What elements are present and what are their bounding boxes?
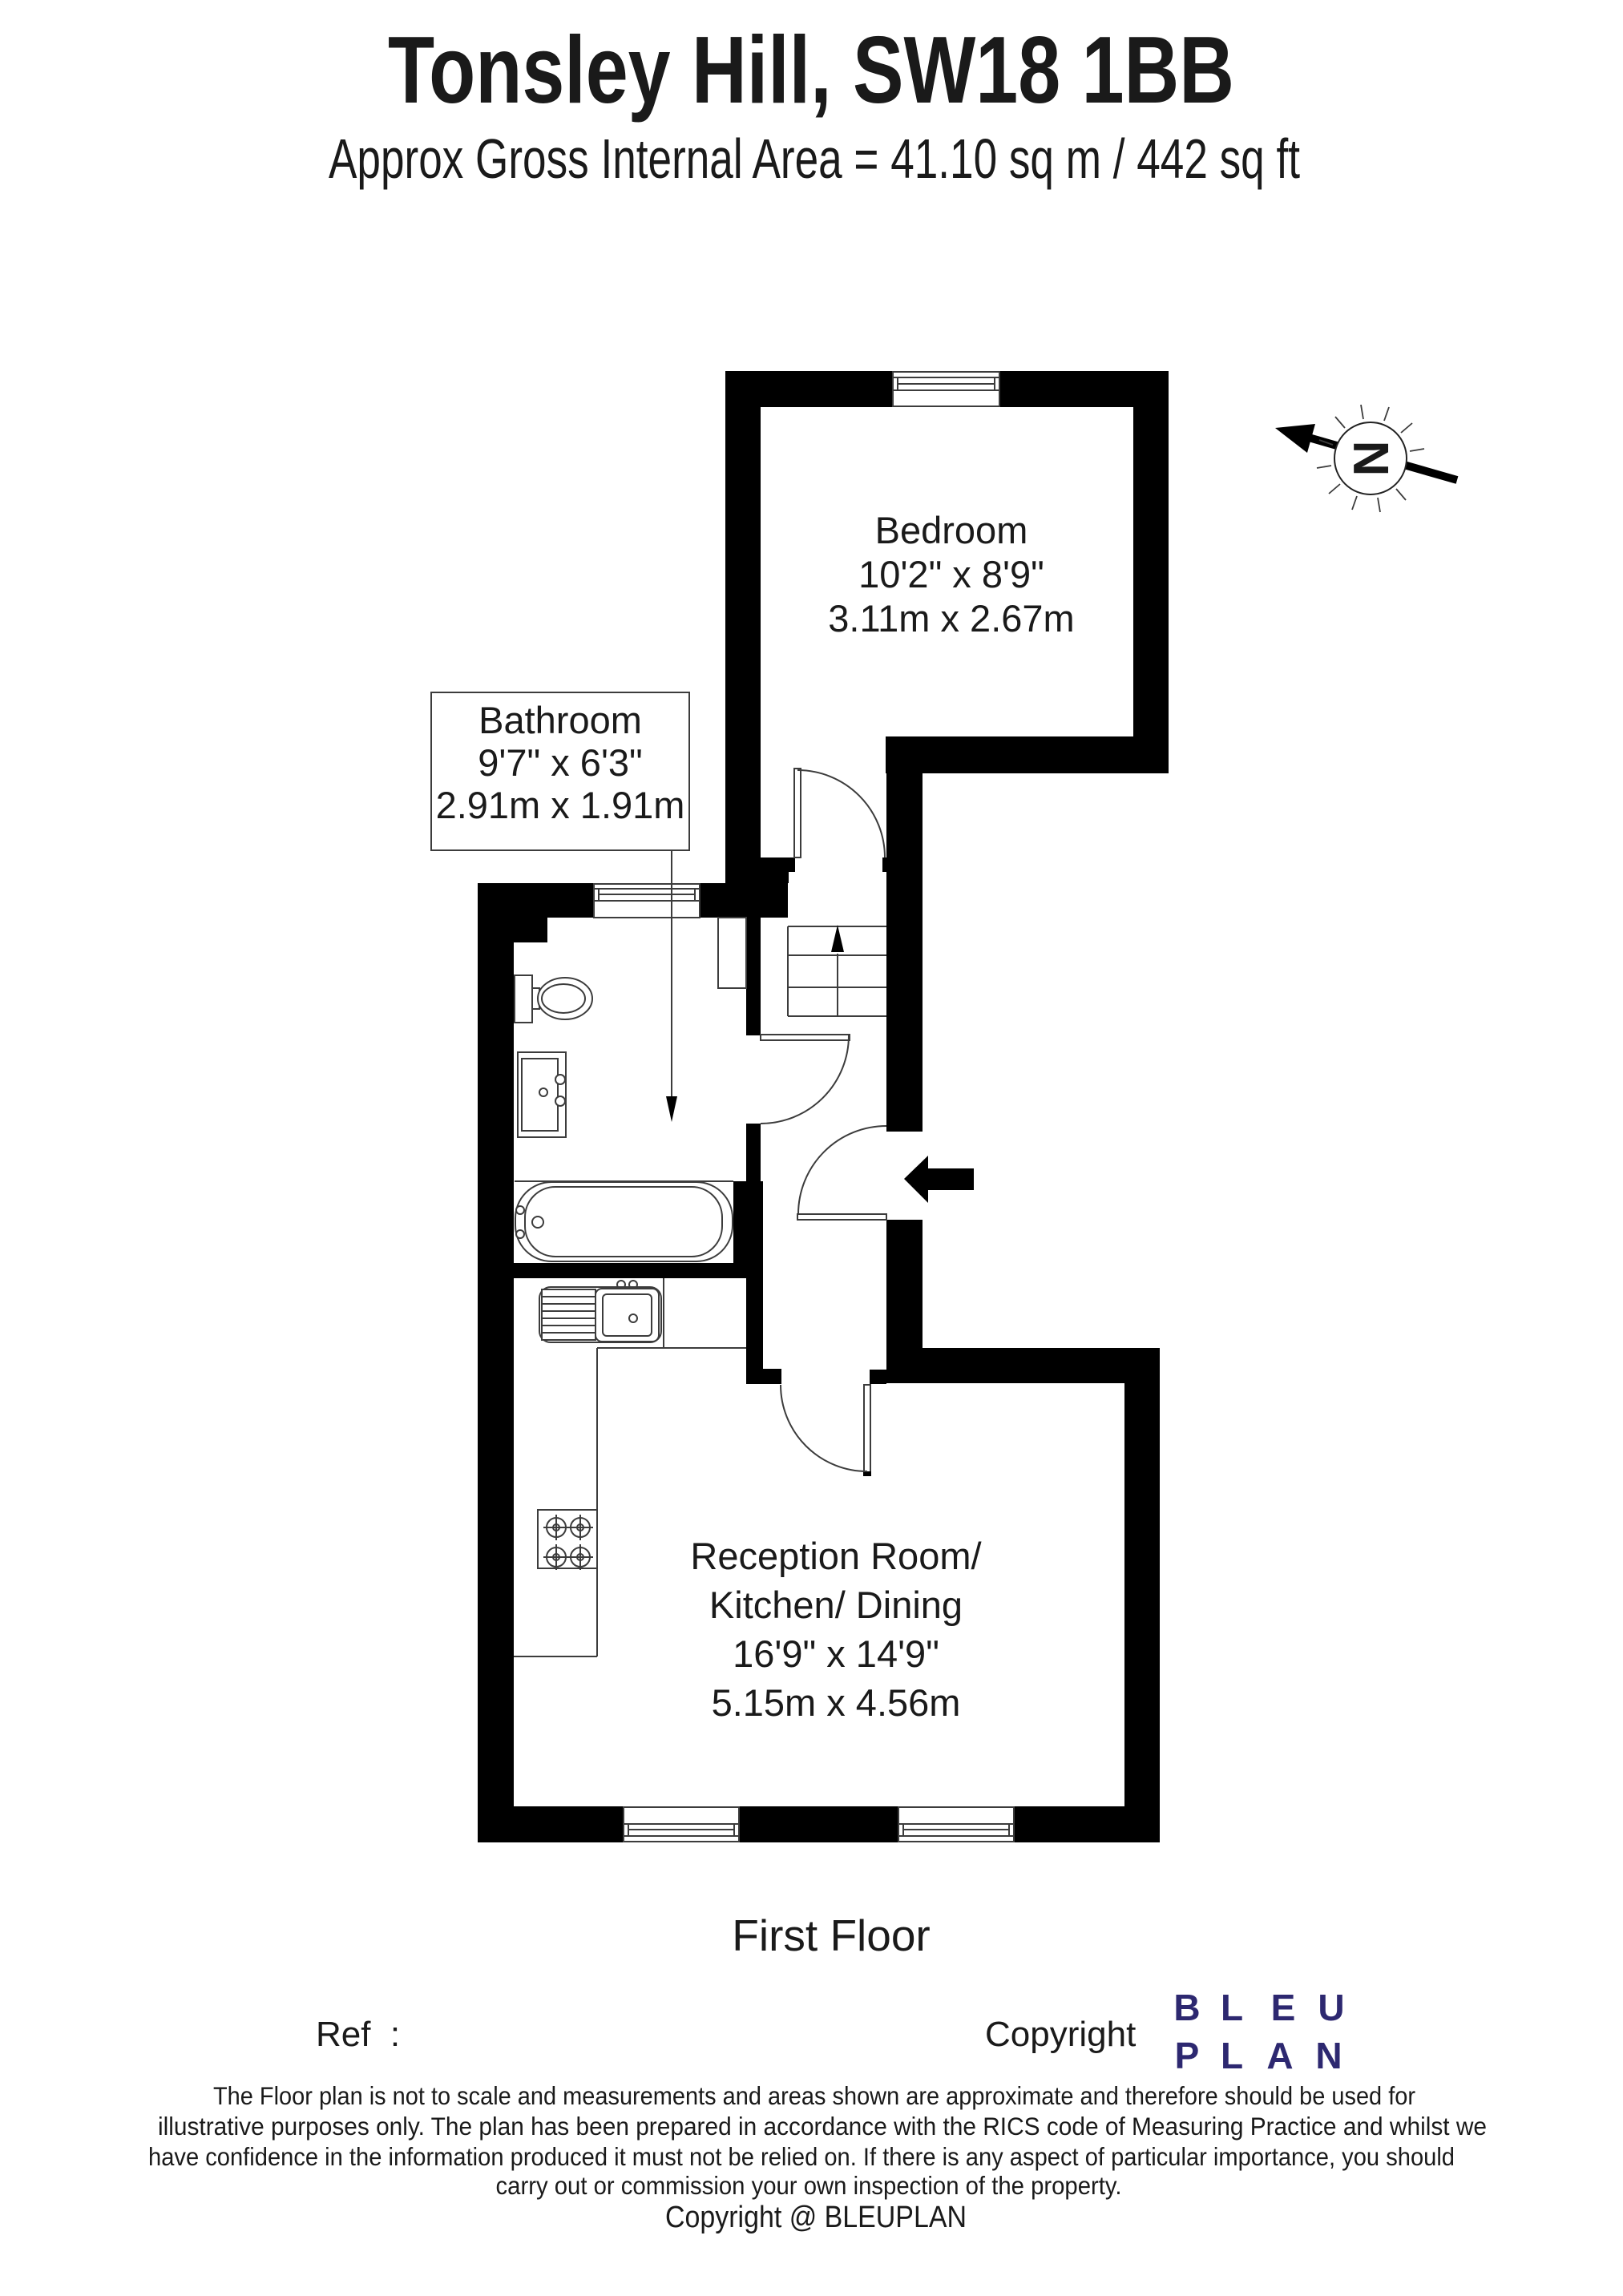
svg-text:L: L bbox=[1221, 2035, 1243, 2076]
svg-text:Reception Room/: Reception Room/ bbox=[690, 1535, 982, 1577]
svg-text:Copyright: Copyright bbox=[985, 2015, 1136, 2054]
svg-text:carry out or commission your o: carry out or commission your own inspect… bbox=[496, 2171, 1122, 2200]
svg-text:3.11m x 2.67m: 3.11m x 2.67m bbox=[828, 597, 1074, 640]
svg-text:U: U bbox=[1318, 1987, 1344, 2028]
svg-text:P: P bbox=[1175, 2035, 1200, 2076]
svg-text:First Floor: First Floor bbox=[732, 1911, 931, 1960]
svg-text:Approx Gross Internal Area = 4: Approx Gross Internal Area = 41.10 sq m … bbox=[329, 127, 1300, 190]
svg-text:2.91m x 1.91m: 2.91m x 1.91m bbox=[436, 784, 685, 826]
svg-text:Kitchen/ Dining: Kitchen/ Dining bbox=[709, 1584, 963, 1626]
svg-text:L: L bbox=[1221, 1987, 1243, 2028]
svg-text:5.15m x 4.56m: 5.15m x 4.56m bbox=[712, 1681, 961, 1724]
svg-text:Ref :: Ref : bbox=[316, 2015, 400, 2054]
svg-text:B: B bbox=[1173, 1987, 1200, 2028]
svg-text:N: N bbox=[1344, 441, 1399, 477]
svg-text:have confidence in the informa: have confidence in the information produ… bbox=[148, 2142, 1455, 2171]
svg-text:Bathroom: Bathroom bbox=[478, 699, 642, 741]
svg-text:Bedroom: Bedroom bbox=[875, 509, 1028, 551]
svg-text:illustrative purposes only. Th: illustrative purposes only. The plan has… bbox=[158, 2112, 1487, 2141]
svg-text:N: N bbox=[1315, 2035, 1342, 2076]
svg-text:Copyright @ BLEUPLAN: Copyright @ BLEUPLAN bbox=[665, 2201, 967, 2234]
svg-text:A: A bbox=[1266, 2035, 1293, 2076]
svg-text:16'9" x 14'9": 16'9" x 14'9" bbox=[733, 1632, 939, 1675]
svg-text:9'7" x 6'3": 9'7" x 6'3" bbox=[478, 741, 643, 784]
svg-text:10'2" x 8'9": 10'2" x 8'9" bbox=[858, 553, 1044, 595]
svg-text:Tonsley Hill, SW18 1BB: Tonsley Hill, SW18 1BB bbox=[388, 17, 1234, 123]
svg-text:E: E bbox=[1271, 1987, 1296, 2028]
svg-text:The Floor plan is not to scale: The Floor plan is not to scale and measu… bbox=[213, 2081, 1415, 2110]
